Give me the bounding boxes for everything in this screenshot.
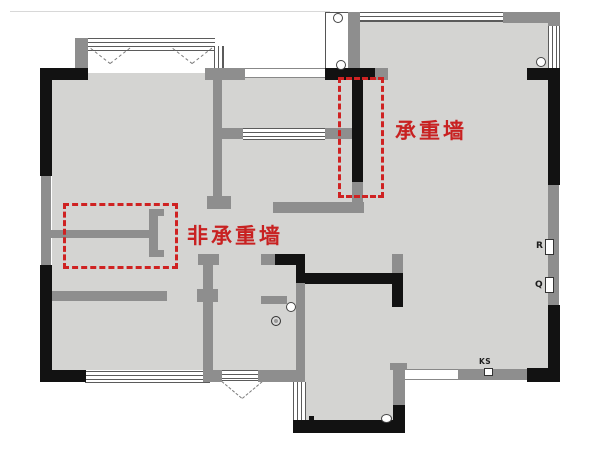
marker-r-box bbox=[545, 239, 554, 255]
marker-q-box bbox=[545, 277, 554, 293]
wall-partition-c-nub bbox=[197, 289, 218, 302]
bay-window-frame bbox=[88, 38, 215, 52]
top-window bbox=[360, 12, 503, 22]
floor-top-right-room bbox=[360, 20, 548, 80]
wall-left-top-black bbox=[40, 68, 52, 176]
wall-bottomright-horizontal-black bbox=[527, 368, 560, 382]
wall-top-cap bbox=[205, 68, 245, 80]
hinge-circle bbox=[336, 60, 346, 70]
interior-window-jamb-left bbox=[222, 128, 243, 139]
bathroom-window bbox=[293, 382, 306, 420]
wall-hall-horizontal bbox=[273, 202, 364, 213]
wall-partition-c bbox=[203, 254, 213, 382]
hinge-circle bbox=[536, 57, 546, 67]
bottom-door-glass bbox=[222, 370, 258, 381]
wall-stub-e bbox=[392, 254, 403, 274]
door-swing-arc bbox=[221, 381, 242, 398]
non-load-bearing-label: 非承重墙 bbox=[187, 220, 283, 250]
load-bearing-label: 承重墙 bbox=[395, 115, 467, 145]
wall-bathroom-stub bbox=[261, 296, 287, 304]
bottom-left-window bbox=[85, 371, 210, 383]
marker-q-label: Q bbox=[535, 280, 543, 290]
wall-bathroom-right-nub bbox=[390, 363, 407, 370]
wall-bottom-mid bbox=[258, 370, 296, 382]
wall-topleft-horizontal-black bbox=[40, 68, 88, 80]
floor-bathroom bbox=[300, 370, 393, 421]
wall-hall-z-3 bbox=[305, 273, 403, 284]
wall-left-bottom-black bbox=[40, 265, 52, 382]
marker-ks-label: KS bbox=[479, 357, 491, 366]
wall-left-middle bbox=[41, 176, 51, 265]
wall-bottomleft-horizontal-black bbox=[40, 370, 86, 382]
load-bearing-highlight-box bbox=[338, 77, 384, 198]
non-load-bearing-highlight-box bbox=[63, 203, 178, 269]
drain-circle bbox=[381, 414, 392, 423]
door-swing-arc bbox=[242, 381, 263, 398]
wall-partition-a-foot bbox=[207, 196, 231, 209]
right-top-window bbox=[548, 20, 560, 68]
wall-bathroom-right-black bbox=[393, 405, 405, 422]
wall-partition-c-cap bbox=[198, 254, 219, 265]
wall-balcony-post bbox=[348, 12, 360, 68]
wall-bottom-post bbox=[207, 370, 222, 382]
hinge-circle bbox=[286, 302, 296, 312]
floor-plan: R Q KS 承重墙 非承重墙 bbox=[0, 0, 600, 450]
wall-hall-z-4 bbox=[392, 273, 403, 307]
wall-cap-hall bbox=[261, 254, 276, 265]
marker-r-label: R bbox=[536, 241, 543, 251]
marker-ks-box bbox=[484, 368, 493, 376]
entry-opening bbox=[405, 369, 458, 380]
wall-hall-z-2 bbox=[296, 254, 305, 283]
small-black-marker bbox=[309, 416, 314, 420]
balcony-sill-window bbox=[243, 68, 325, 78]
wall-bedroom-divider bbox=[51, 291, 167, 301]
wall-top-right-corner-step bbox=[548, 12, 560, 26]
peephole-icon bbox=[271, 316, 281, 326]
faint-roof-line bbox=[10, 11, 330, 12]
wall-partition-a bbox=[213, 77, 222, 198]
hinge-circle bbox=[333, 13, 343, 23]
bay-window-side bbox=[214, 46, 224, 68]
wall-right-top-black bbox=[548, 68, 560, 185]
wall-bathroom-right bbox=[393, 367, 405, 405]
wall-partition-d bbox=[296, 283, 305, 382]
interior-window bbox=[243, 128, 325, 140]
bay-window-post-left bbox=[75, 38, 88, 69]
